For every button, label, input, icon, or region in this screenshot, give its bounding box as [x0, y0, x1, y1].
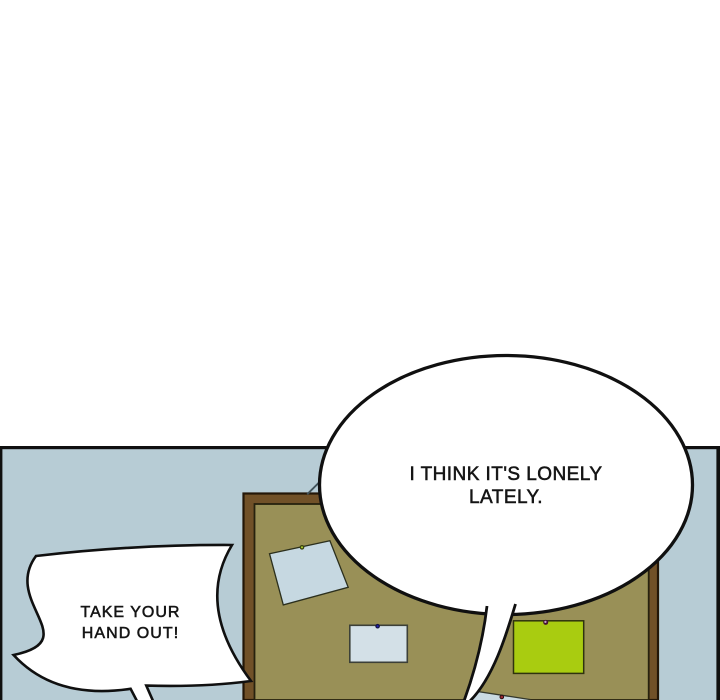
svg-text:I THINK IT'S LONELY: I THINK IT'S LONELY [409, 464, 602, 485]
svg-text:HAND OUT!: HAND OUT! [82, 625, 179, 642]
svg-text:TAKE YOUR: TAKE YOUR [81, 604, 181, 621]
svg-text:LATELY.: LATELY. [469, 487, 543, 508]
